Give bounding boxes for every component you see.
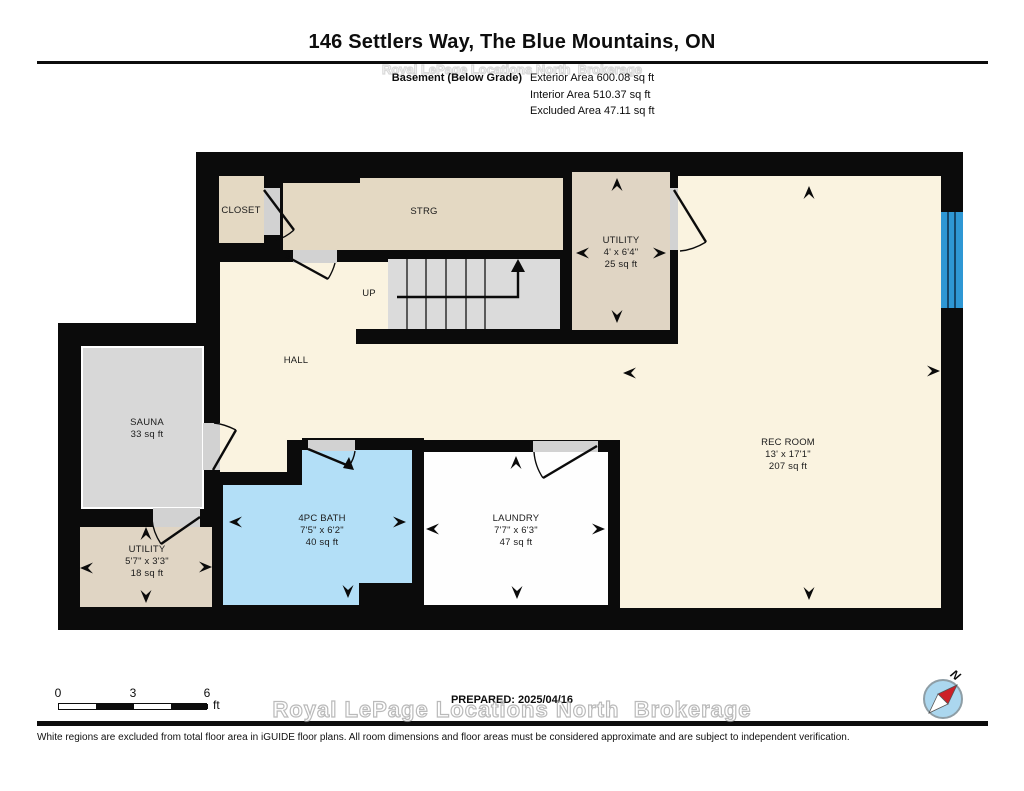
rec-room-strip: [620, 342, 678, 608]
open-band: [388, 342, 620, 440]
closet-name: CLOSET: [221, 205, 260, 216]
rec-room-name: REC ROOM: [761, 437, 815, 449]
floor-plan-page: Royal LePage Locations North Brokerage 1…: [0, 0, 1024, 791]
watermark: Royal LePage Locations North Brokerage: [0, 697, 1024, 723]
rec-room-area: 207 sq ft: [761, 461, 815, 473]
wall-under-utility: [560, 330, 678, 344]
sauna-area: 33 sq ft: [130, 429, 164, 441]
utility-top-area: 25 sq ft: [603, 259, 640, 271]
stairs-direction: UP: [362, 288, 376, 299]
bath-dims: 7'5" x 6'2": [298, 525, 345, 537]
label-hall: HALL: [284, 355, 309, 367]
stairs: [388, 259, 560, 329]
sauna-name: SAUNA: [130, 417, 164, 429]
disclaimer-text: White regions are excluded from total fl…: [37, 732, 997, 743]
label-utility-lower: UTILITY 5'7" x 3'3" 18 sq ft: [125, 544, 169, 580]
room-rec-room: [678, 176, 941, 608]
laundry-name: LAUNDRY: [493, 513, 540, 525]
hall-name: HALL: [284, 355, 309, 366]
label-closet: CLOSET: [221, 205, 260, 217]
label-sauna: SAUNA 33 sq ft: [130, 417, 164, 441]
wall-bath-laundry: [412, 438, 424, 605]
bath-area: 40 sq ft: [298, 537, 345, 549]
bath-name: 4PC BATH: [298, 513, 345, 525]
label-strg: STRG: [410, 206, 437, 218]
utility-lower-dims: 5'7" x 3'3": [125, 556, 169, 568]
label-bath: 4PC BATH 7'5" x 6'2" 40 sq ft: [298, 513, 345, 549]
rec-room-dims: 13' x 17'1": [761, 449, 815, 461]
strg-name: STRG: [410, 206, 437, 217]
label-rec-room: REC ROOM 13' x 17'1" 207 sq ft: [761, 437, 815, 473]
utility-lower-name: UTILITY: [125, 544, 169, 556]
utility-lower-area: 18 sq ft: [125, 568, 169, 580]
wall-bath-corner: [287, 440, 302, 485]
label-laundry: LAUNDRY 7'7" x 6'3" 47 sq ft: [493, 513, 540, 549]
label-up: UP: [362, 288, 376, 300]
laundry-area: 47 sq ft: [493, 537, 540, 549]
utility-top-dims: 4' x 6'4": [603, 247, 640, 259]
wall-under-stairs: [356, 329, 573, 344]
wall-hall-bath-left: [218, 472, 295, 485]
window: [941, 212, 963, 308]
floor-plan-drawing: [0, 0, 1024, 791]
label-utility-top: UTILITY 4' x 6'4" 25 sq ft: [603, 235, 640, 271]
wall-laundry-rec: [608, 440, 620, 605]
laundry-dims: 7'7" x 6'3": [493, 525, 540, 537]
utility-top-name: UTILITY: [603, 235, 640, 247]
